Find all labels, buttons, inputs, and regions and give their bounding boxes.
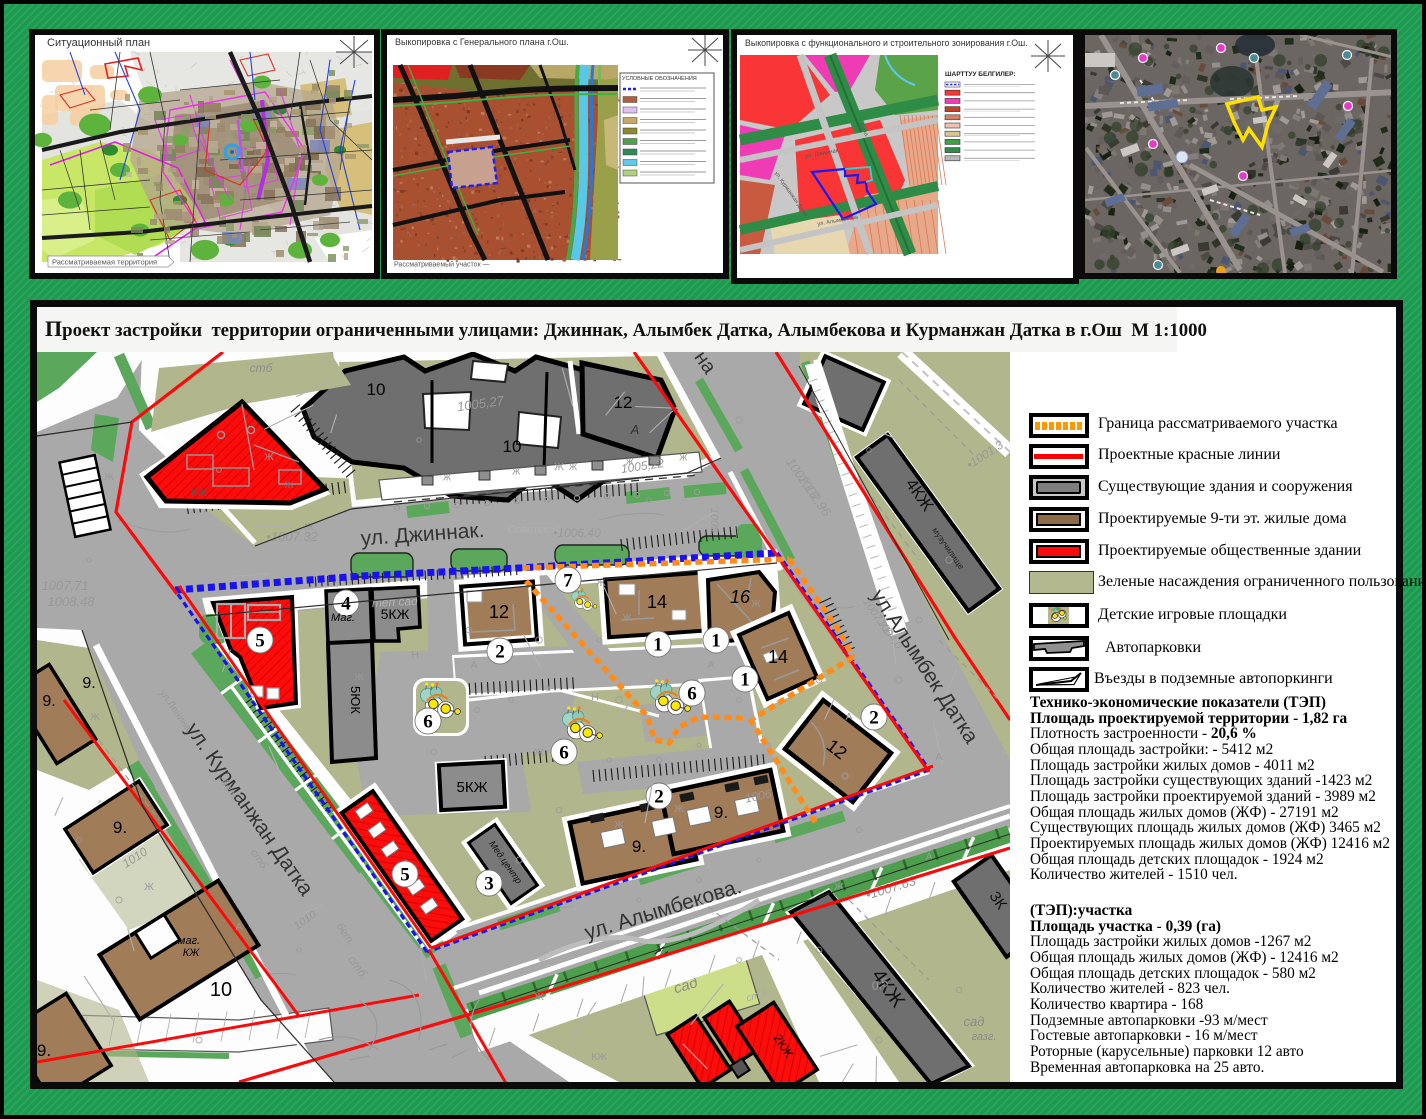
svg-text:Ж: Ж <box>679 452 688 462</box>
svg-text:А: А <box>707 659 714 671</box>
svg-text:Ж: Ж <box>284 480 294 491</box>
svg-text:Выкопировка с Генерального пла: Выкопировка с Генерального плана г.Ош. <box>395 37 569 47</box>
svg-text:А: А <box>935 751 942 763</box>
svg-text:газг.: газг. <box>972 1031 997 1043</box>
svg-text:10: 10 <box>210 979 232 1001</box>
svg-text:9.: 9. <box>37 1041 51 1060</box>
svg-text:Ж: Ж <box>554 461 564 473</box>
svg-text:Ж: Ж <box>614 819 624 831</box>
svg-text:16: 16 <box>730 587 751 607</box>
svg-text:6: 6 <box>687 684 697 705</box>
svg-text:Рассматриваемая территория: Рассматриваемая территория <box>52 258 157 267</box>
svg-text:Ж: Ж <box>622 612 632 624</box>
svg-text:А: А <box>630 422 640 437</box>
svg-text:КЖ: КЖ <box>191 487 208 499</box>
svg-text:маг.: маг. <box>178 935 200 947</box>
svg-text:•1006,40: •1006,40 <box>553 526 601 540</box>
svg-text:9.: 9. <box>113 818 127 837</box>
svg-text:ШАРТТУУ БЕЛГИЛЕР:: ШАРТТУУ БЕЛГИЛЕР: <box>945 71 1016 78</box>
svg-text:Рассматриваемый участок —: Рассматриваемый участок — <box>394 261 490 269</box>
svg-text:Ж: Ж <box>674 803 684 815</box>
svg-text:5ЮК: 5ЮК <box>348 686 363 714</box>
svg-text:6: 6 <box>559 743 569 764</box>
svg-text:А: А <box>470 659 477 671</box>
svg-text:КЖ: КЖ <box>591 1051 607 1063</box>
svg-text:Ж: Ж <box>90 711 100 723</box>
svg-text:2: 2 <box>869 708 879 729</box>
svg-text:Н: Н <box>591 691 599 703</box>
svg-text:Ж: Ж <box>534 747 544 759</box>
svg-text:2: 2 <box>654 787 664 808</box>
svg-text:А: А <box>845 711 852 723</box>
svg-text:Ж: Ж <box>534 991 544 1003</box>
svg-text:12: 12 <box>489 602 509 622</box>
svg-text:Выкопировка с функционального: Выкопировка с функционального и строител… <box>745 38 1028 48</box>
svg-text:1: 1 <box>740 670 750 691</box>
svg-text:5: 5 <box>255 631 265 652</box>
svg-text:2: 2 <box>495 642 505 663</box>
svg-text:Маг.: Маг. <box>331 612 355 624</box>
svg-text:Ж: Ж <box>354 671 364 683</box>
svg-text:стб: стб <box>250 361 274 375</box>
svg-text:9.: 9. <box>42 693 55 710</box>
svg-text:Ж: Ж <box>569 462 578 472</box>
svg-text:1005: 1005 <box>708 508 720 533</box>
svg-text:Ж: Ж <box>144 881 154 893</box>
svg-text:1007,71: 1007,71 <box>42 578 89 593</box>
svg-text:7: 7 <box>563 571 573 592</box>
svg-text:1008,48: 1008,48 <box>48 594 96 609</box>
svg-text:9.: 9. <box>632 837 646 856</box>
svg-text:Ж: Ж <box>443 473 452 483</box>
svg-text:1: 1 <box>653 635 663 656</box>
svg-text:1010,02: 1010,02 <box>337 986 381 1000</box>
svg-text:А: А <box>235 921 242 933</box>
svg-text:14: 14 <box>768 647 788 667</box>
svg-text:5: 5 <box>400 865 410 886</box>
svg-text:14: 14 <box>647 592 667 612</box>
svg-text:Ж: Ж <box>751 598 761 610</box>
svg-text:Ж: Ж <box>104 471 114 483</box>
svg-text:Ж: Ж <box>512 467 521 477</box>
svg-text:9.: 9. <box>82 675 95 692</box>
svg-text:Ж: Ж <box>264 451 274 463</box>
svg-text:3: 3 <box>484 874 494 895</box>
svg-text:9.: 9. <box>714 803 728 822</box>
svg-text:1: 1 <box>711 631 721 652</box>
svg-text:Н: Н <box>411 649 419 661</box>
svg-text:10: 10 <box>367 380 386 399</box>
svg-text:УСЛОВНЫЕ ОБОЗНАЧЕНИЯ: УСЛОВНЫЕ ОБОЗНАЧЕНИЯ <box>622 76 697 82</box>
svg-text:Ситуационный план: Ситуационный план <box>47 37 150 49</box>
svg-text:КЖ: КЖ <box>183 947 200 959</box>
svg-text:5КЖ: 5КЖ <box>457 779 488 796</box>
svg-text:10: 10 <box>503 437 522 456</box>
svg-text:6: 6 <box>423 712 433 733</box>
svg-text:теп сад: теп сад <box>371 594 418 610</box>
svg-text:сад: сад <box>964 1014 985 1029</box>
